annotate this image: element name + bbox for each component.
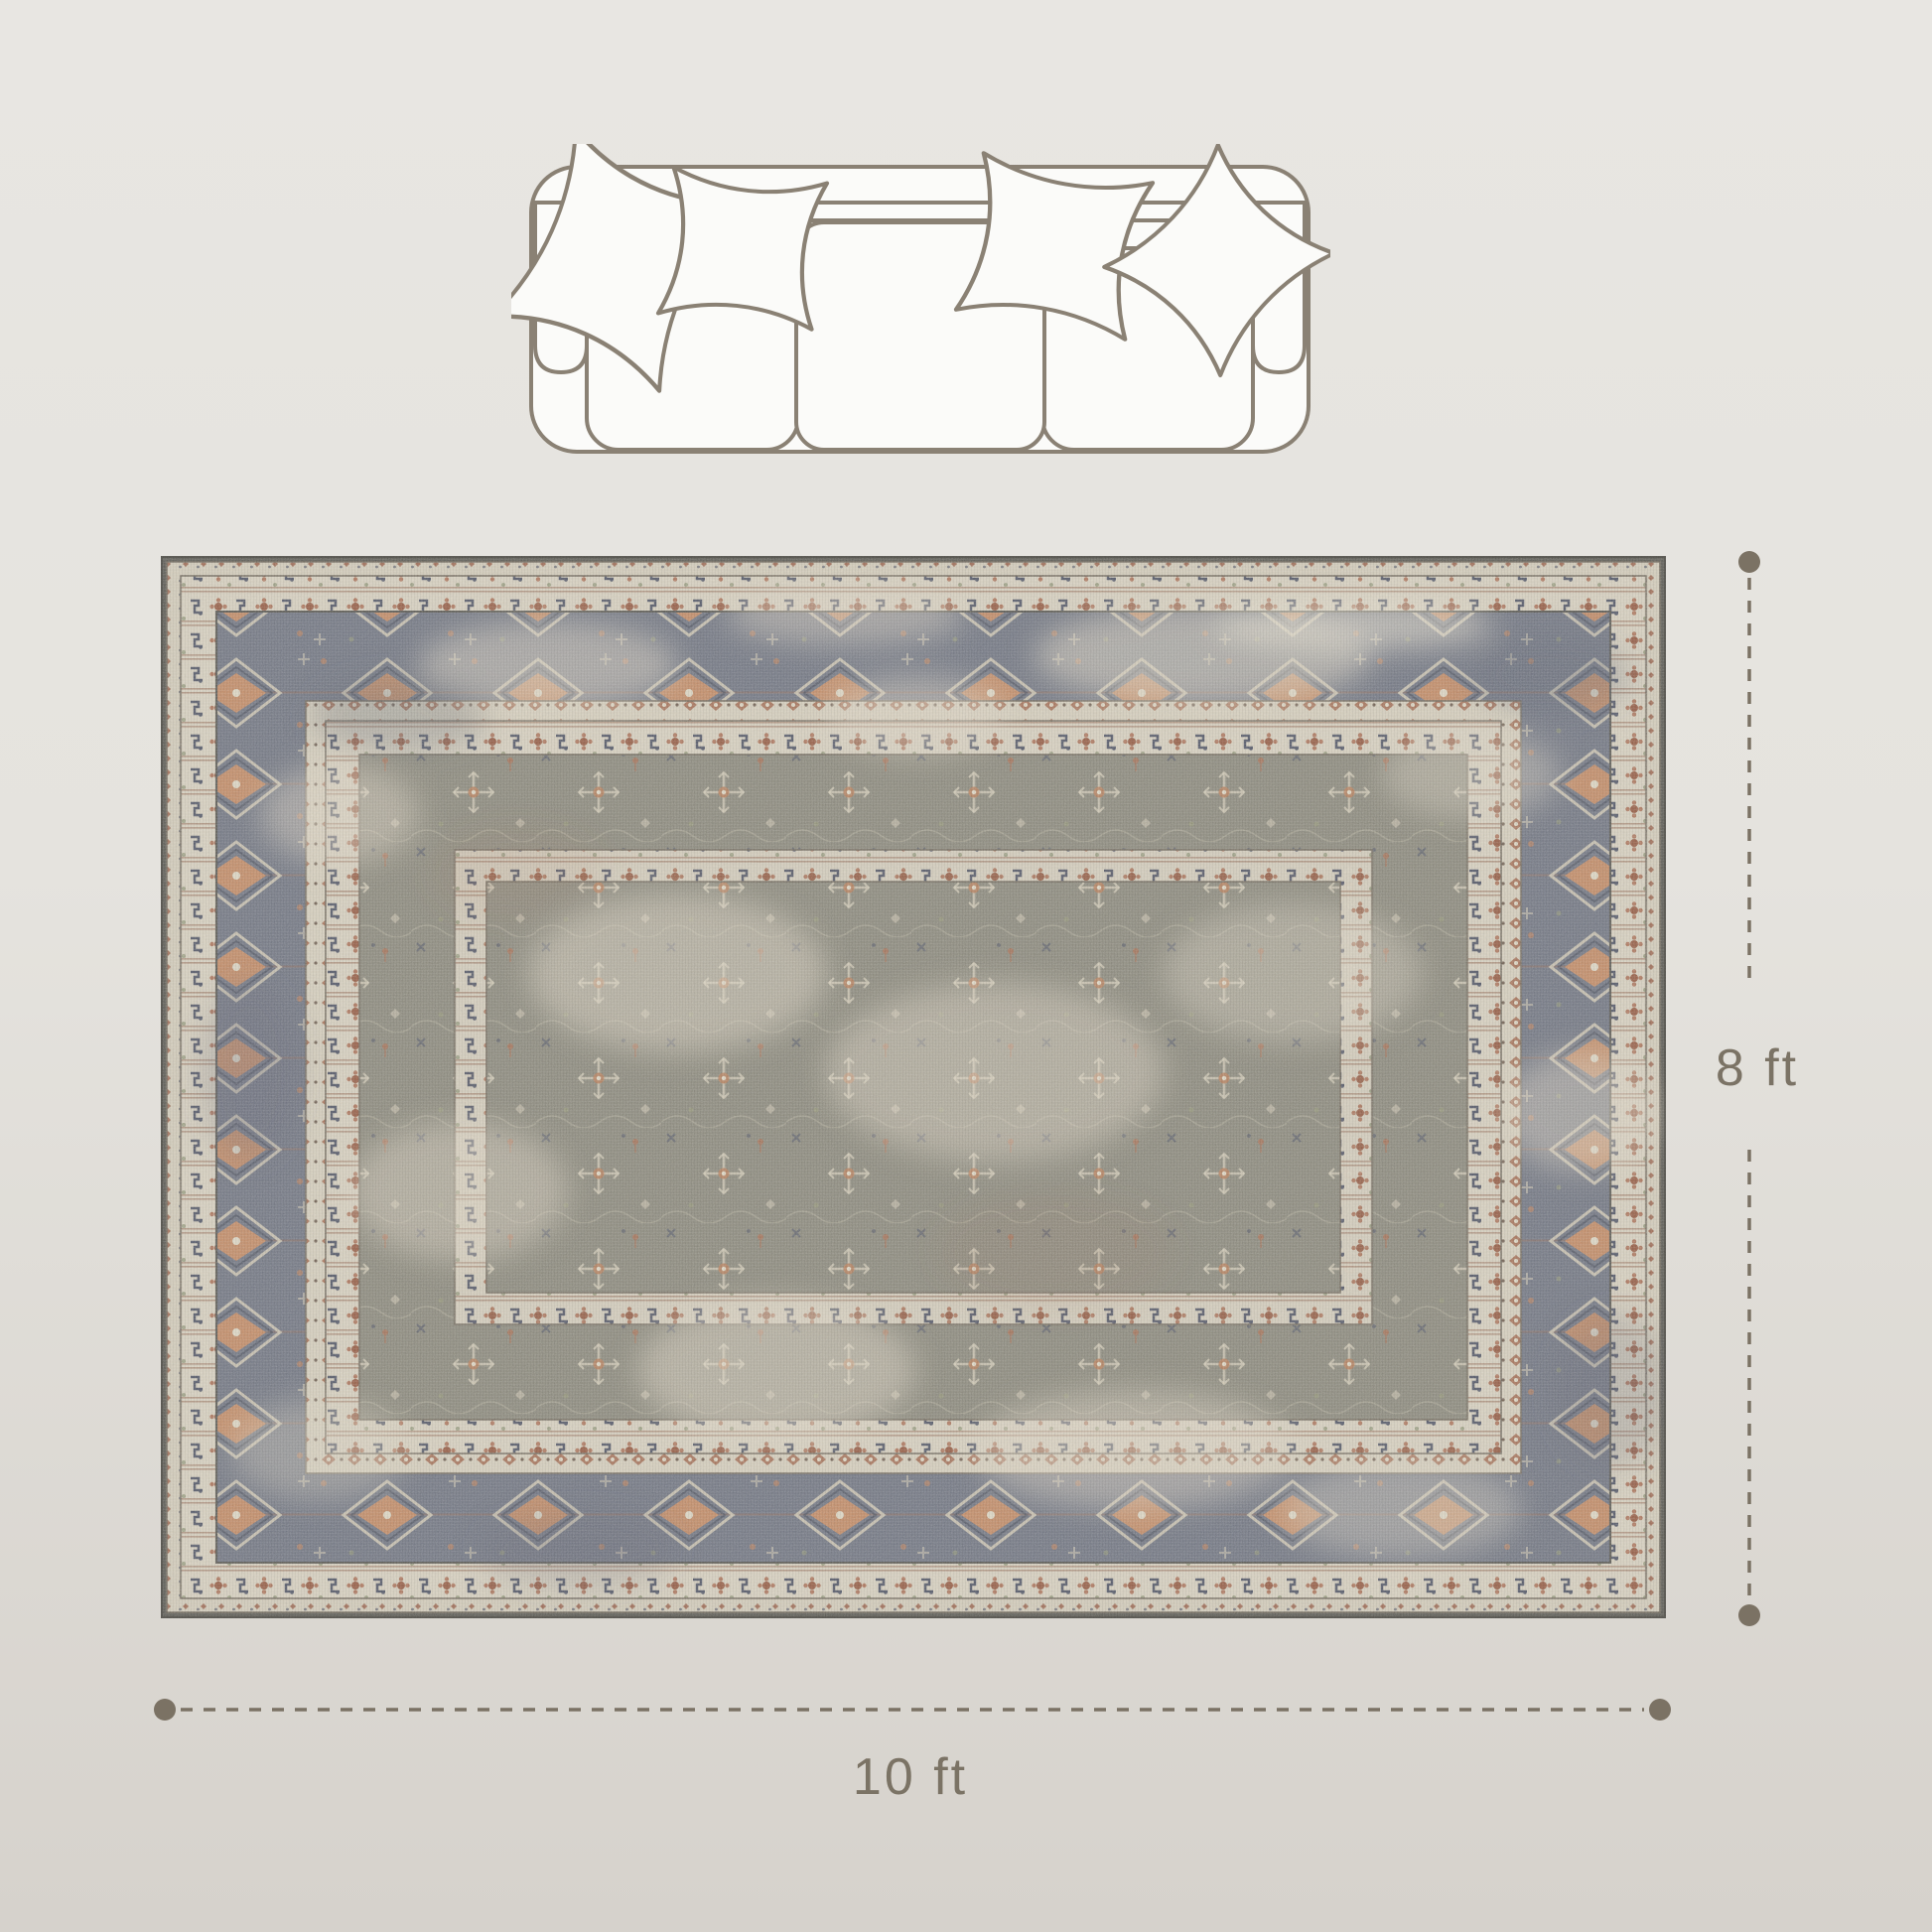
dimension-lines-layer	[0, 0, 1932, 1932]
width-dimension-line	[154, 1699, 1671, 1721]
product-dimension-diagram: 8 ft 10 ft	[0, 0, 1932, 1932]
height-dimension-label: 8 ft	[1716, 1038, 1799, 1098]
width-dimension-label: 10 ft	[853, 1747, 968, 1807]
